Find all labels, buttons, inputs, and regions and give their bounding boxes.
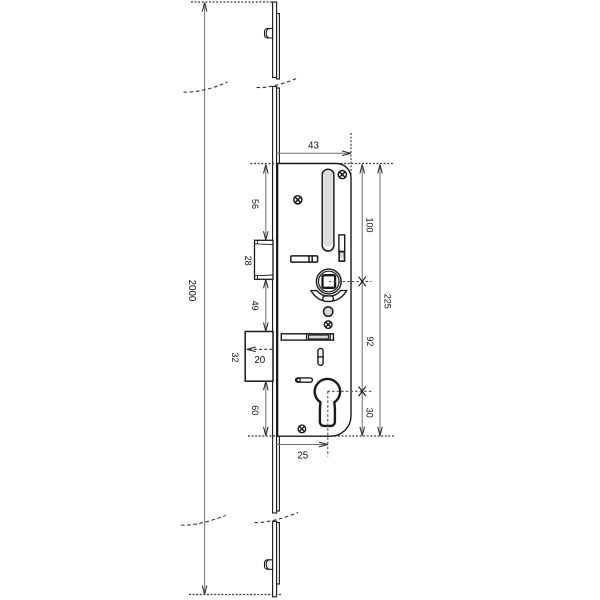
svg-text:92: 92 [365, 336, 375, 346]
svg-text:49: 49 [250, 301, 260, 311]
svg-text:2000: 2000 [186, 280, 197, 302]
svg-text:100: 100 [365, 217, 375, 232]
svg-text:30: 30 [364, 408, 374, 418]
svg-text:20: 20 [254, 355, 265, 366]
svg-text:32: 32 [230, 352, 240, 362]
svg-text:56: 56 [250, 199, 260, 209]
svg-text:60: 60 [250, 405, 260, 415]
svg-text:43: 43 [308, 141, 319, 152]
svg-text:225: 225 [383, 294, 393, 309]
svg-text:28: 28 [243, 256, 253, 266]
svg-text:25: 25 [297, 451, 308, 462]
